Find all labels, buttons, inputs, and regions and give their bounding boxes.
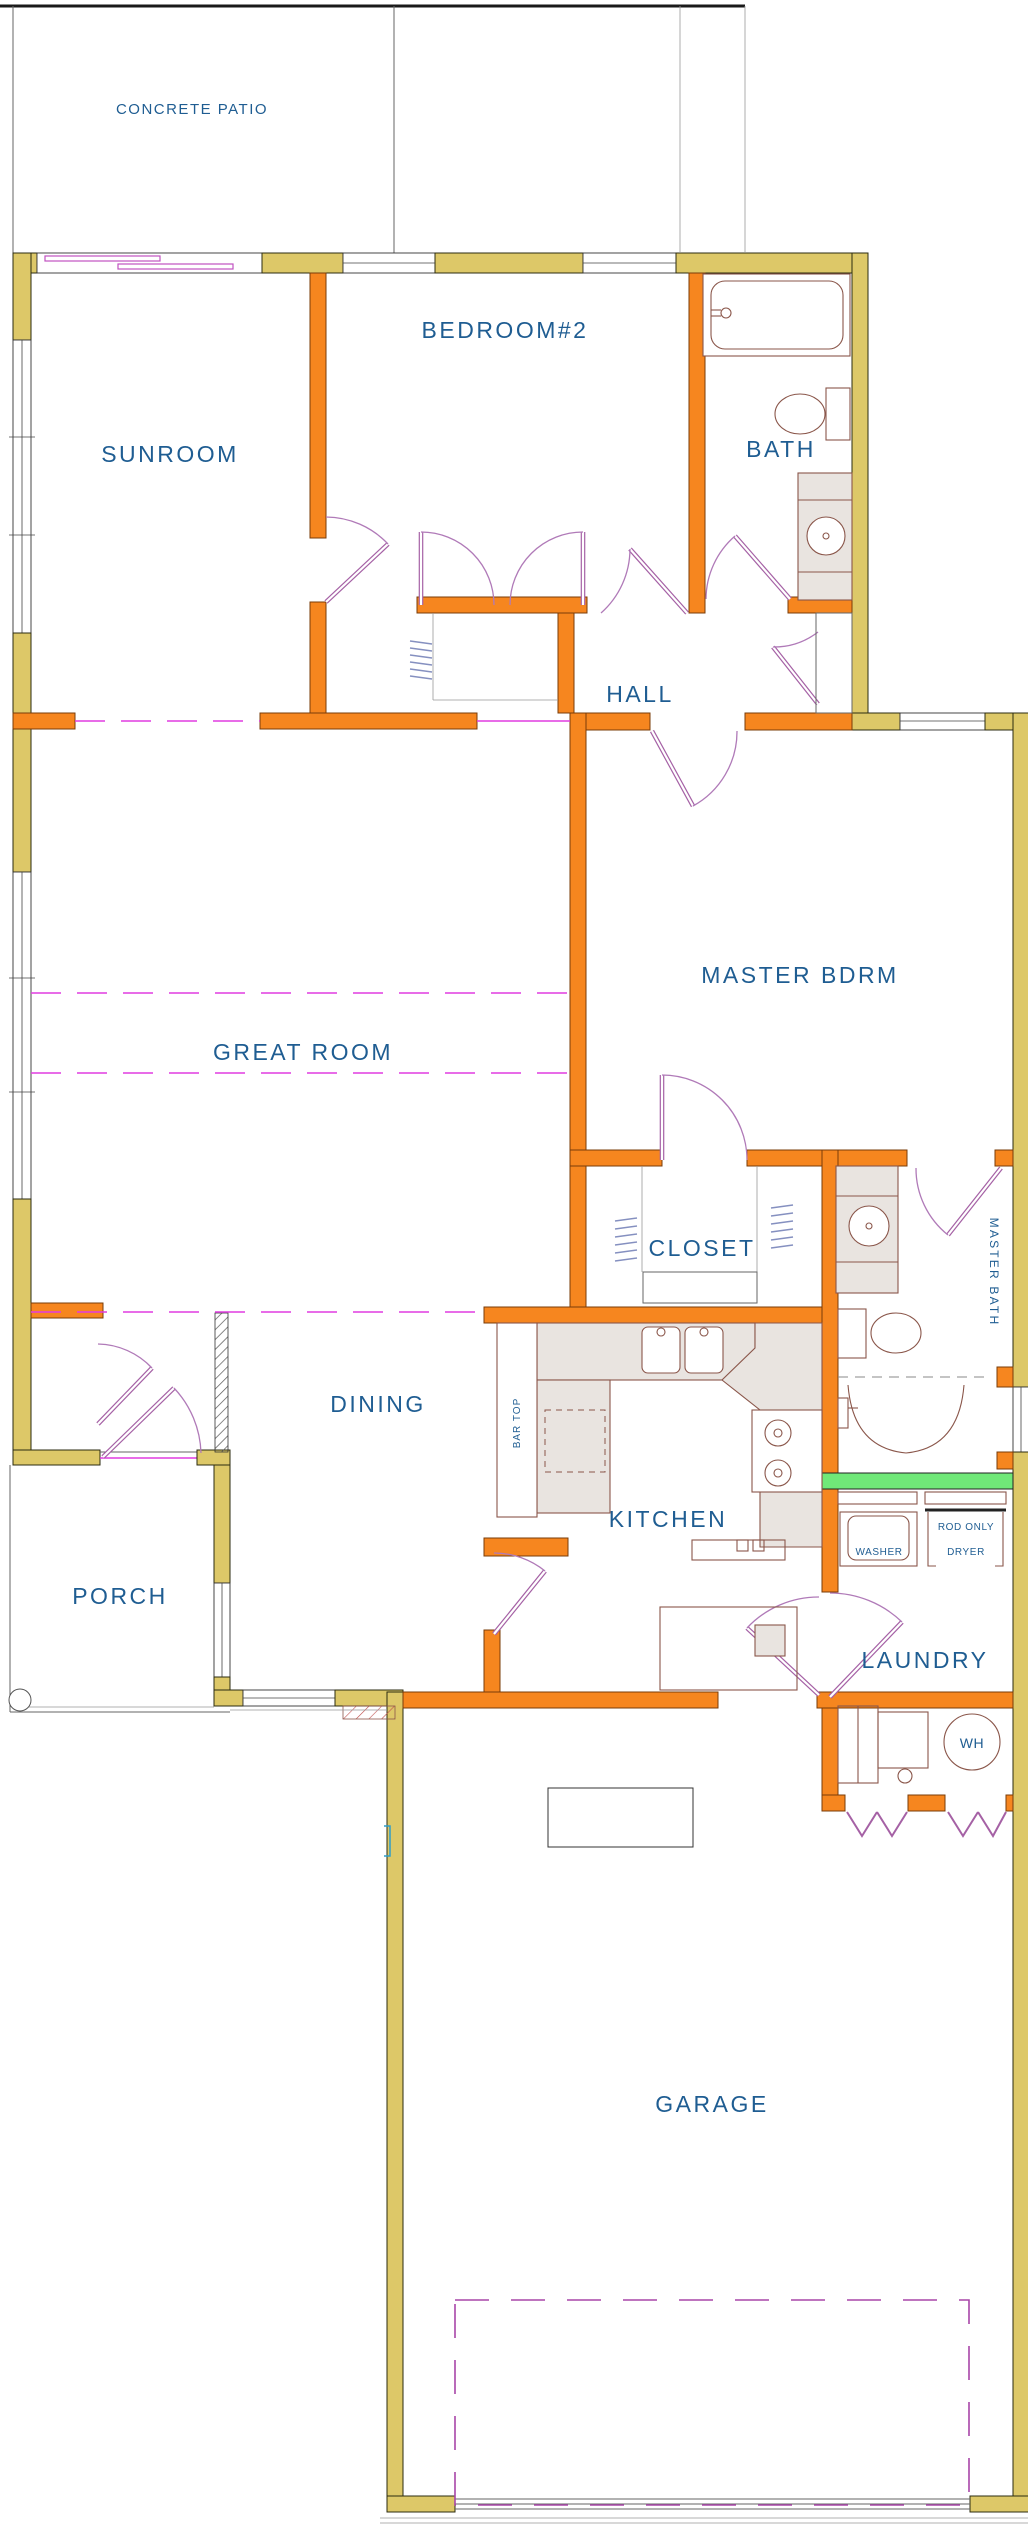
room-label-laundry: LAUNDRY <box>862 1647 989 1673</box>
ceiling-break-lines <box>31 721 570 1312</box>
label-washer: WASHER <box>855 1547 902 1558</box>
room-label-bath: BATH <box>746 436 816 462</box>
label-rod-only: ROD ONLY <box>938 1522 994 1533</box>
concrete-patio: CONCRETE PATIO <box>0 6 745 253</box>
entry-stoop <box>343 1706 395 1719</box>
room-label-bedroom2: BEDROOM#2 <box>422 317 589 343</box>
room-label-hall: HALL <box>606 681 674 707</box>
room-label-sunroom: SUNROOM <box>101 441 239 467</box>
label-bar-top: BAR TOP <box>512 1398 523 1449</box>
room-label-porch: PORCH <box>72 1583 168 1609</box>
porch-column <box>9 1689 31 1711</box>
bedroom2-closet-shelf <box>410 613 558 700</box>
floor-plan-drawing: CONCRETE PATIO <box>0 0 1028 2537</box>
room-label-great-room: GREAT ROOM <box>213 1039 393 1065</box>
green-accent-wall <box>822 1473 1013 1489</box>
room-label-kitchen: KITCHEN <box>609 1506 727 1532</box>
label-dryer: DRYER <box>947 1547 985 1558</box>
hatched-wall-pier <box>215 1313 228 1452</box>
bifold-door-right <box>948 1812 1006 1836</box>
mud-hall-cabinets <box>660 1540 797 1690</box>
room-label-master-bath: MASTER BATH <box>987 1218 1001 1327</box>
room-label-master-bdrm: MASTER BDRM <box>701 962 898 988</box>
garage-door-dashed <box>455 2300 969 2505</box>
room-label-garage: GARAGE <box>655 2091 768 2117</box>
garage-items <box>230 1706 969 2505</box>
label-water-heater: WH <box>960 1735 985 1751</box>
linen-closet <box>816 613 852 713</box>
room-label-patio: CONCRETE PATIO <box>116 101 268 118</box>
room-label-closet: CLOSET <box>648 1235 755 1261</box>
floor-plan-page: CONCRETE PATIO <box>0 0 1028 2537</box>
bifold-door-left <box>847 1812 907 1836</box>
room-label-dining: DINING <box>330 1391 426 1417</box>
